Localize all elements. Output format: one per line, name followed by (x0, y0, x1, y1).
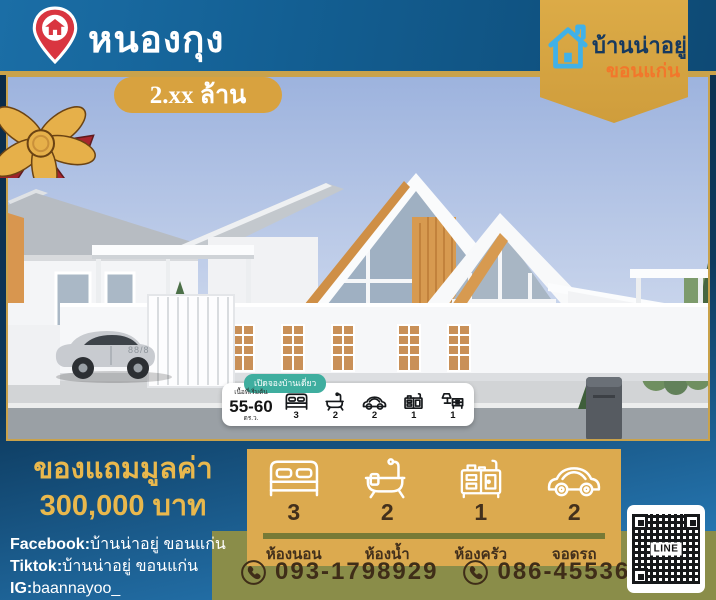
car-icon (542, 455, 606, 499)
qr-line-label: LINE (651, 543, 682, 556)
qr-finder-icon (684, 514, 700, 530)
brand-ribbon: บ้านน่าอยู่ ขอนแก่น (540, 0, 688, 123)
land-area: เนื้อที่เริ่มต้น 55-60 ตร.ว. (228, 390, 274, 422)
house-number-label: 88/8 (128, 345, 150, 355)
ribbon-bow-decoration (0, 46, 120, 178)
amenity-parking: 2 จอดรถ (528, 449, 622, 566)
brand-house-icon (546, 18, 590, 76)
bathtub-icon (355, 455, 419, 499)
facebook-line: Facebook:บ้านน่าอยู่ ขอนแก่น (10, 534, 226, 556)
bed-icon (262, 455, 326, 499)
phone-numbers: 093-1798929 086-4553695 (240, 558, 661, 586)
spec-parking: 2 (358, 391, 392, 421)
real-estate-flyer: 88/8 เปิดจองบ้านเดี่ยว เนื้อที่เริ่มต้น … (0, 0, 716, 600)
spec-kitchen: 1 (397, 391, 431, 421)
furniture-icon (439, 391, 466, 411)
spec-furniture: 1 (436, 391, 470, 421)
brand-city: ขอนแก่น (606, 56, 680, 86)
price-badge: 2.xx ล้าน (114, 77, 282, 113)
amenity-bedrooms: 3 ห้องนอน (247, 449, 341, 566)
bathtub-icon (322, 391, 349, 411)
line-qr-code: LINE (627, 505, 705, 593)
car-icon (361, 391, 388, 411)
kitchen-icon (449, 455, 513, 499)
qr-finder-icon (632, 568, 648, 584)
bed-icon (283, 391, 310, 411)
amenities-divider (263, 533, 605, 539)
giveaway-text: ของแถมมูลค่า 300,000 บาท (2, 451, 244, 525)
spec-card: เปิดจองบ้านเดี่ยว เนื้อที่เริ่มต้น 55-60… (222, 383, 474, 426)
spec-bathrooms: 2 (318, 391, 352, 421)
tiktok-line: Tiktok:บ้านน่าอยู่ ขอนแก่น (10, 556, 226, 578)
amenities-panel: 3 ห้องนอน 2 ห้องน้ำ 1 ห้องครัว 2 จอดรถ (247, 449, 621, 566)
spec-bedrooms: 3 (279, 391, 313, 421)
amenity-bathrooms: 2 ห้องน้ำ (341, 449, 435, 566)
phone-icon (240, 559, 267, 586)
qr-finder-icon (632, 514, 648, 530)
social-contacts: Facebook:บ้านน่าอยู่ ขอนแก่น Tiktok:บ้าน… (10, 534, 226, 600)
instagram-line: IG:baannayoo_ (10, 578, 226, 600)
kitchen-icon (400, 391, 427, 411)
phone-1: 093-1798929 (240, 558, 438, 586)
phone-icon (462, 559, 489, 586)
amenity-kitchen: 1 ห้องครัว (434, 449, 528, 566)
